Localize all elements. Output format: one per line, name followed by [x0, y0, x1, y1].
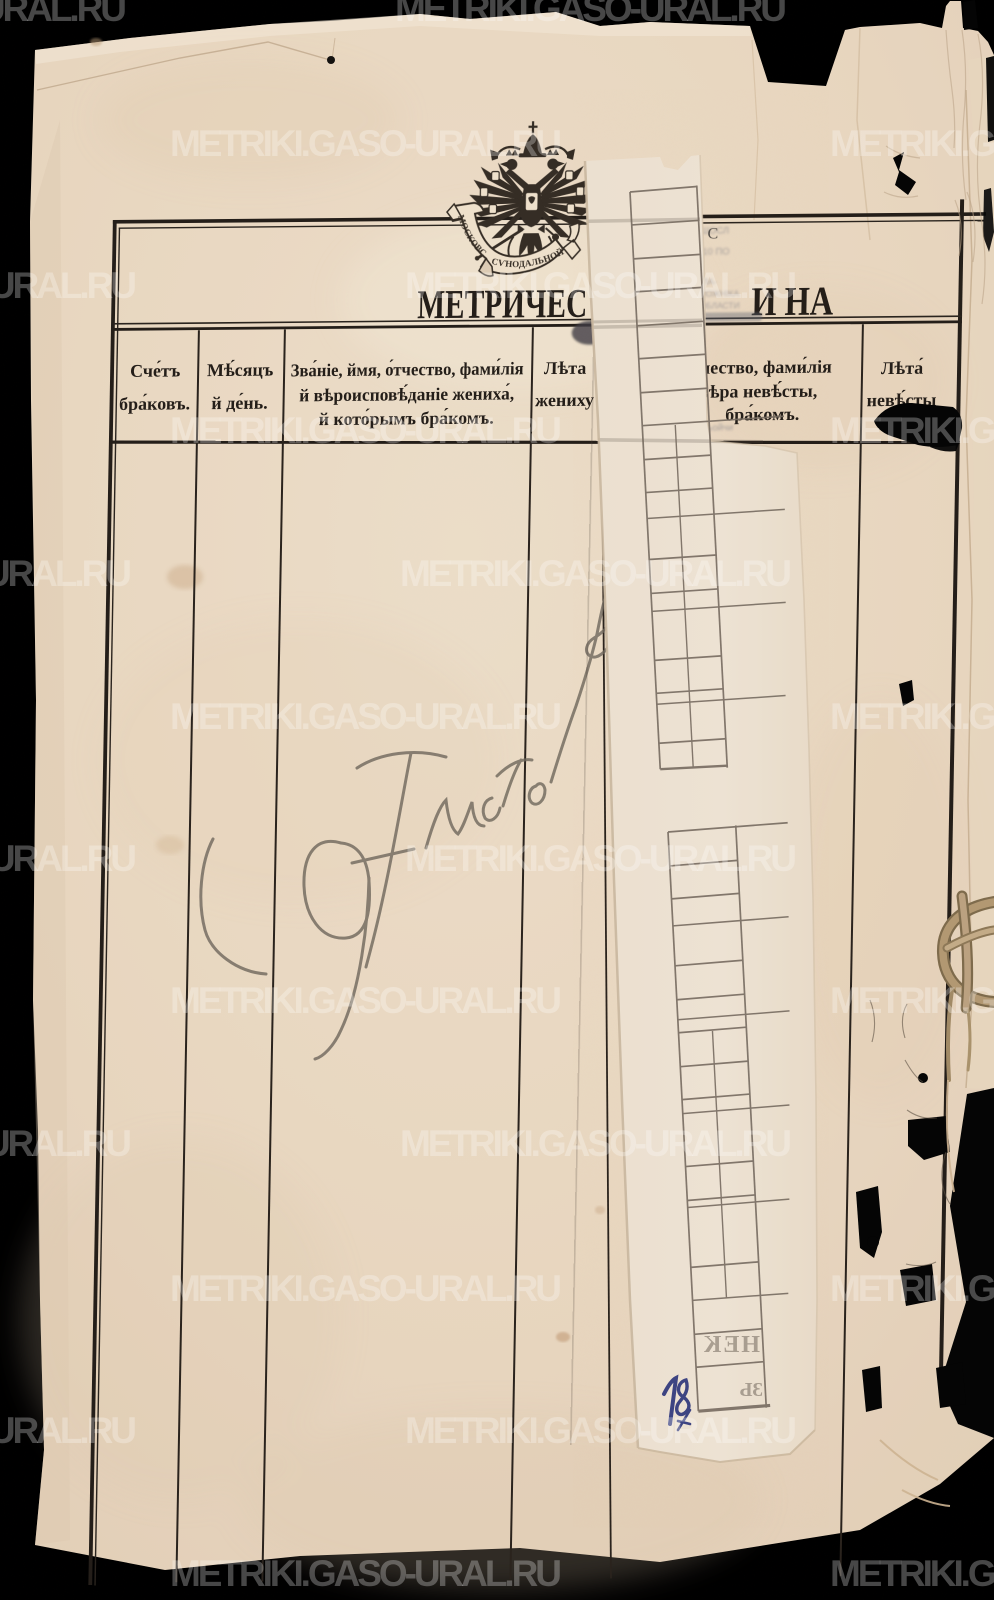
svg-text:Мѣ́сяцъ: Мѣ́сяцъ — [207, 359, 274, 381]
svg-text:METRIKI.GASO-URAL.RU: METRIKI.GASO-URAL.RU — [830, 980, 994, 1021]
svg-text:METRIKI.GASO-URAL.RU: METRIKI.GASO-URAL.RU — [0, 553, 132, 594]
svg-text:METRIKI.GASO-URAL.RU: METRIKI.GASO-URAL.RU — [170, 1268, 562, 1309]
svg-text:Лѣта: Лѣта — [544, 358, 587, 378]
svg-text:METRIKI.GASO-URAL.RU: METRIKI.GASO-URAL.RU — [830, 1268, 994, 1309]
svg-text:METRIKI.GASO-URAL.RU: METRIKI.GASO-URAL.RU — [0, 0, 127, 29]
svg-text:METRIKI.GASO-URAL.RU: METRIKI.GASO-URAL.RU — [170, 696, 562, 737]
svg-text:METRIKI.GASO-URAL.RU: METRIKI.GASO-URAL.RU — [0, 1410, 137, 1451]
svg-text:METRIKI.GASO-URAL.RU: METRIKI.GASO-URAL.RU — [405, 265, 797, 306]
svg-text:METRIKI.GASO-URAL.RU: METRIKI.GASO-URAL.RU — [170, 980, 562, 1021]
svg-text:METRIKI.GASO-URAL.RU: METRIKI.GASO-URAL.RU — [170, 1553, 562, 1594]
svg-text:METRIKI.GASO-URAL.RU: METRIKI.GASO-URAL.RU — [170, 123, 562, 164]
svg-text:METRIKI.GASO-URAL.RU: METRIKI.GASO-URAL.RU — [830, 1553, 994, 1594]
svg-text:METRIKI.GASO-URAL.RU: METRIKI.GASO-URAL.RU — [0, 265, 137, 306]
svg-text:й вѣроисповѣ́данiе жениха́,: й вѣроисповѣ́данiе жениха́, — [299, 382, 514, 405]
svg-text:С: С — [707, 226, 718, 243]
svg-text:METRIKI.GASO-URAL.RU: METRIKI.GASO-URAL.RU — [400, 553, 792, 594]
svg-text:METRIKI.GASO-URAL.RU: METRIKI.GASO-URAL.RU — [400, 1123, 792, 1164]
svg-text:METRIKI.GASO-URAL.RU: METRIKI.GASO-URAL.RU — [0, 838, 137, 879]
svg-text:METRIKI.GASO-URAL.RU: METRIKI.GASO-URAL.RU — [405, 1410, 797, 1451]
svg-text:METRIKI.GASO-URAL.RU: METRIKI.GASO-URAL.RU — [830, 696, 994, 737]
svg-text:бра́комъ.: бра́комъ. — [725, 403, 799, 425]
svg-text:жениху: жениху — [535, 390, 594, 411]
svg-text:METRIKI.GASO-URAL.RU: METRIKI.GASO-URAL.RU — [830, 123, 994, 164]
svg-text:METRIKI.GASO-URAL.RU: METRIKI.GASO-URAL.RU — [405, 838, 797, 879]
svg-text:METRIKI.GASO-URAL.RU: METRIKI.GASO-URAL.RU — [0, 1123, 132, 1164]
svg-text:METRIKI.GASO-URAL.RU: METRIKI.GASO-URAL.RU — [395, 0, 787, 29]
svg-text:METRIKI.GASO-URAL.RU: METRIKI.GASO-URAL.RU — [830, 410, 994, 451]
svg-text:METRIKI.GASO-URAL.RU: METRIKI.GASO-URAL.RU — [170, 410, 562, 451]
svg-text:Лѣта́: Лѣта́ — [881, 357, 924, 378]
svg-text:ЗЬ: ЗЬ — [739, 1379, 763, 1401]
svg-text:Зва́нiе, ймя, о́тчество, фами́: Зва́нiе, ймя, о́тчество, фами́лiя — [290, 357, 524, 380]
svg-text:10 ПО: 10 ПО — [702, 246, 730, 257]
svg-text:Сче́тъ: Сче́тъ — [130, 359, 181, 380]
svg-text:НЕК: НЕК — [702, 1332, 760, 1358]
